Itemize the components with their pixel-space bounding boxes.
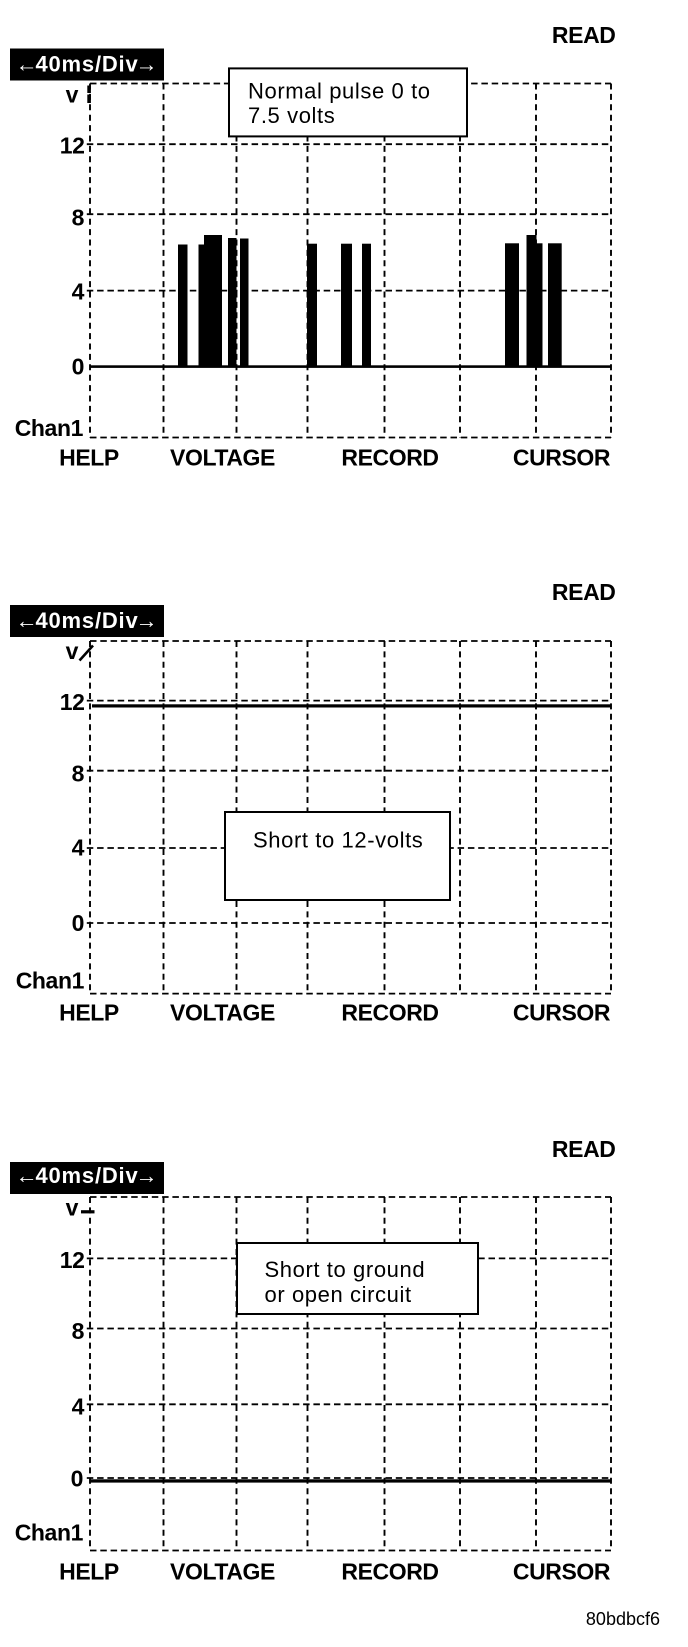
- svg-text:4: 4: [72, 1394, 85, 1420]
- svg-text:0: 0: [71, 1466, 83, 1492]
- svg-text:←40ms/Div→: ←40ms/Div→: [16, 52, 159, 77]
- svg-text:CURSOR: CURSOR: [513, 1000, 611, 1026]
- svg-text:Chan1: Chan1: [15, 1520, 84, 1546]
- svg-text:VOLTAGE: VOLTAGE: [170, 445, 275, 471]
- svg-text:VOLTAGE: VOLTAGE: [170, 1000, 275, 1026]
- svg-text:Short to ground: Short to ground: [265, 1257, 426, 1282]
- svg-text:Chan1: Chan1: [15, 415, 84, 441]
- svg-text:←40ms/Div→: ←40ms/Div→: [16, 1163, 159, 1188]
- svg-text:0: 0: [72, 354, 84, 380]
- svg-text:HELP: HELP: [59, 1559, 119, 1585]
- svg-text:8: 8: [72, 761, 85, 787]
- svg-text:HELP: HELP: [59, 445, 119, 471]
- svg-text:v: v: [66, 638, 79, 664]
- svg-text:READ: READ: [552, 22, 616, 48]
- svg-text:Normal pulse 0 to: Normal pulse 0 to: [248, 78, 431, 103]
- svg-text:CURSOR: CURSOR: [513, 445, 611, 471]
- svg-text:←40ms/Div→: ←40ms/Div→: [16, 608, 159, 633]
- svg-text:VOLTAGE: VOLTAGE: [170, 1559, 275, 1585]
- svg-text:Chan1: Chan1: [16, 967, 85, 993]
- svg-text:READ: READ: [552, 579, 616, 605]
- svg-text:READ: READ: [552, 1136, 616, 1162]
- svg-text:12: 12: [60, 689, 85, 715]
- svg-text:HELP: HELP: [59, 1000, 119, 1026]
- svg-text:0: 0: [72, 910, 84, 936]
- svg-text:8: 8: [72, 205, 85, 231]
- svg-text:7.5 volts: 7.5 volts: [248, 103, 335, 128]
- svg-text:4: 4: [72, 835, 85, 861]
- svg-text:8: 8: [72, 1318, 85, 1344]
- svg-text:80bdbcf6: 80bdbcf6: [586, 1609, 660, 1629]
- svg-text:12: 12: [60, 1247, 85, 1273]
- svg-text:CURSOR: CURSOR: [513, 1559, 611, 1585]
- svg-text:RECORD: RECORD: [341, 445, 438, 471]
- svg-text:RECORD: RECORD: [341, 1000, 438, 1026]
- svg-text:v: v: [66, 1195, 79, 1221]
- svg-text:or open circuit: or open circuit: [265, 1282, 412, 1307]
- svg-text:12: 12: [60, 133, 85, 159]
- svg-text:4: 4: [72, 279, 85, 305]
- svg-text:RECORD: RECORD: [341, 1559, 438, 1585]
- svg-text:v: v: [66, 82, 79, 108]
- svg-text:Short to 12-volts: Short to 12-volts: [253, 828, 423, 853]
